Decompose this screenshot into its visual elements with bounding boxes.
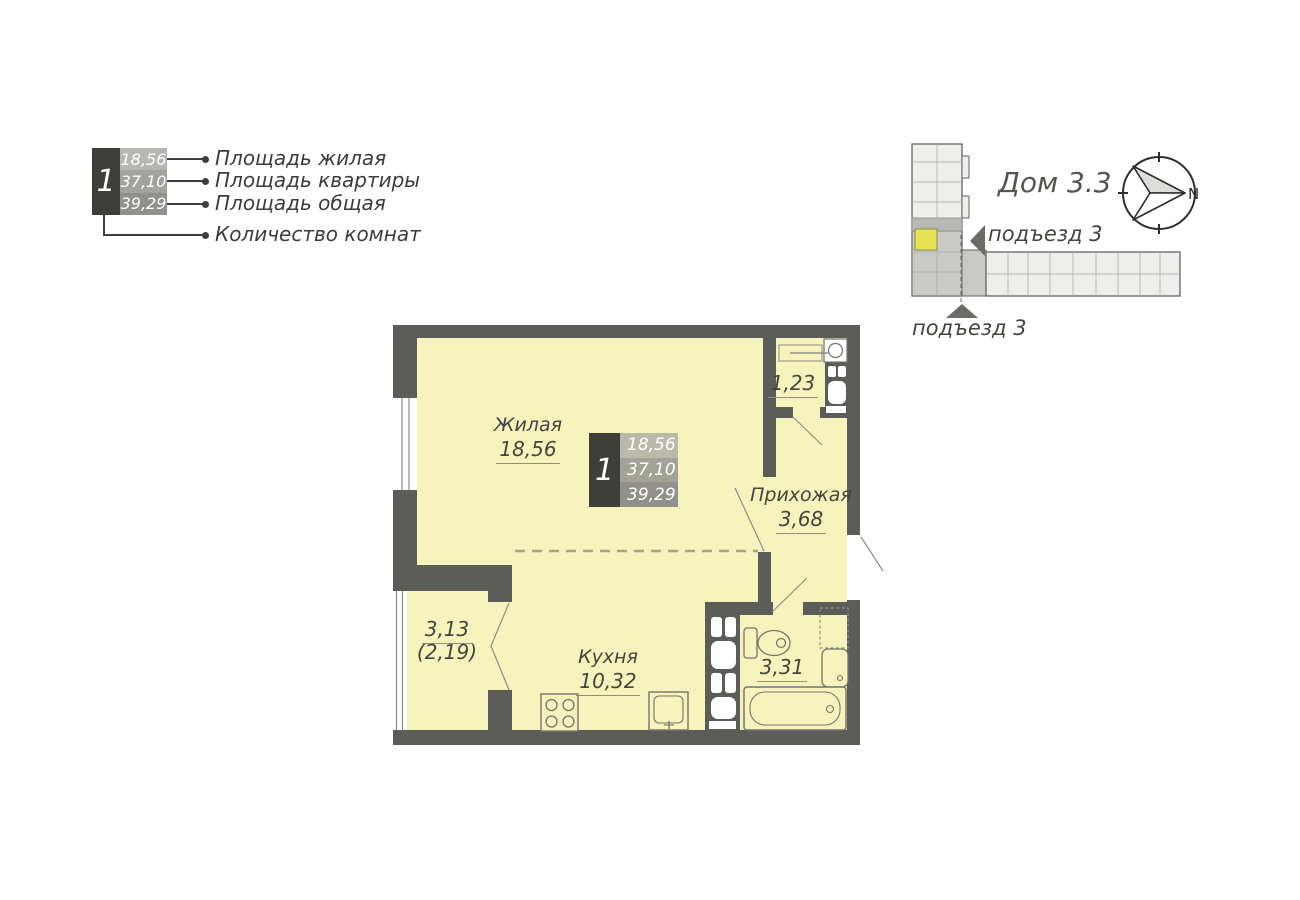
info-flat-area: 37,10: [620, 458, 678, 483]
leader-line: [167, 180, 205, 182]
legend-label-flat-area: Площадь квартиры: [215, 169, 420, 191]
legend-label-rooms-count: Количество комнат: [215, 223, 421, 245]
legend-flat-area-value: 37,10: [120, 170, 167, 192]
leader-line: [167, 203, 205, 205]
leader-dot: [202, 178, 209, 185]
stove-icon: [541, 694, 578, 731]
balcony-area-coef: (2,19): [407, 642, 487, 663]
bathtub-icon: [744, 687, 846, 730]
wc-sink-icon: [824, 339, 847, 362]
living-room-label: Жилая 18,56: [468, 415, 588, 460]
apartment-info-box: 1 18,56 37,10 39,29: [589, 433, 678, 507]
leader-line: [103, 215, 105, 236]
highlighted-apartment: [915, 229, 937, 250]
legend-living-area-value: 18,56: [120, 148, 167, 170]
north-arrow-icon: [1133, 166, 1185, 193]
leader-dot: [202, 201, 209, 208]
leader-dot: [202, 156, 209, 163]
wc-area: 1,23: [768, 371, 819, 398]
leader-line: [103, 234, 205, 236]
bathroom-label: 3,31: [755, 657, 809, 678]
kitchen-sink-icon: [649, 692, 688, 730]
bathroom-sink-icon: [822, 649, 848, 687]
legend-rooms-count-box: 1: [92, 148, 120, 215]
bathroom-area: 3,31: [757, 655, 808, 682]
info-total-area: 39,29: [620, 482, 678, 507]
floor-plan: 1 18,56 37,10 39,29 Жилая 18,56 Кухня 10…: [393, 325, 893, 755]
info-living-area: 18,56: [620, 433, 678, 458]
wc-label: 1,23: [767, 373, 819, 394]
kitchen-name: Кухня: [553, 647, 663, 668]
house-title: Дом 3.3: [998, 166, 1112, 199]
entrance-label-bottom: подъезд 3: [912, 316, 1027, 340]
compass-north-label: N: [1188, 185, 1199, 203]
legend-total-area-value: 39,29: [120, 193, 167, 215]
info-area-values: 18,56 37,10 39,29: [620, 433, 678, 507]
hallway-area: 3,68: [776, 507, 827, 534]
legend-label-living-area: Площадь жилая: [215, 147, 386, 169]
living-room-name: Жилая: [468, 415, 588, 436]
hallway-label: Прихожая 3,68: [745, 485, 857, 530]
toilet-icon: [744, 628, 790, 658]
window-balcony: [393, 591, 407, 730]
kitchen-label: Кухня 10,32: [553, 647, 663, 692]
legend: 1 18,56 37,10 39,29 Площадь жилая Площад…: [92, 146, 422, 256]
balcony-label: 3,13 (2,19): [407, 619, 487, 663]
entrance-label-side: подъезд 3: [988, 222, 1103, 246]
leader-dot: [202, 232, 209, 239]
legend-label-total-area: Площадь общая: [215, 192, 386, 214]
entrance-door-opening: [847, 535, 860, 600]
legend-area-values: 18,56 37,10 39,29: [120, 148, 167, 215]
kitchen-area: 10,32: [576, 669, 639, 696]
legend-rooms-count-value: 1: [96, 164, 115, 199]
leader-line: [167, 158, 205, 160]
compass-icon: N: [1112, 146, 1212, 240]
living-room-area: 18,56: [496, 437, 559, 464]
hallway-name: Прихожая: [745, 485, 857, 506]
info-rooms-count: 1: [589, 433, 620, 507]
window-living: [393, 398, 417, 490]
